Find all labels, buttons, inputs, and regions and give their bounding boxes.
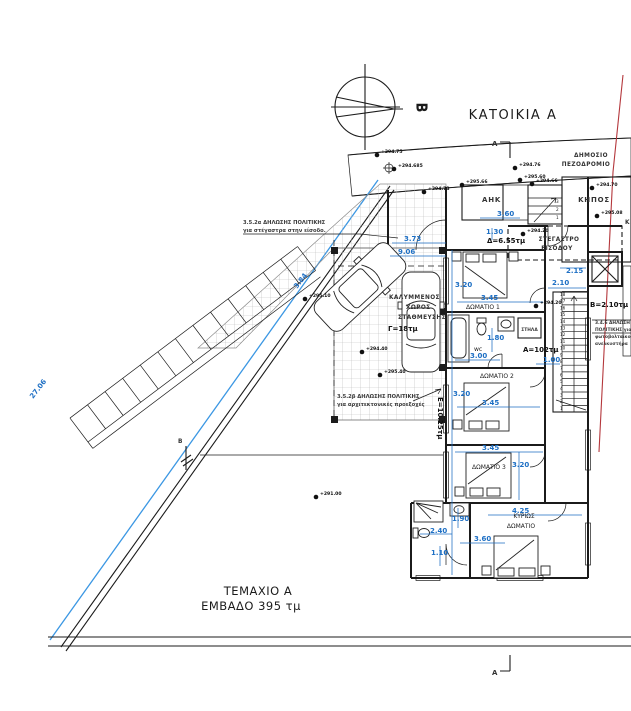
spot-elevation-dot	[521, 232, 526, 237]
stair-number: 3	[560, 393, 563, 398]
spot-elevation-label: +295.40	[384, 369, 406, 375]
dimension-label: 3.45	[481, 294, 498, 302]
dimension-label: 2.15	[566, 267, 583, 275]
elevator-shaft	[588, 252, 622, 286]
stair-number: 17	[560, 299, 566, 304]
entry-step-number: 1	[556, 215, 559, 220]
note-c-line2: ΠΟΛΙΤΙΚΗΣ για	[595, 327, 631, 333]
dimension-label: 3.20	[512, 461, 529, 469]
spot-elevation-dot	[303, 297, 308, 302]
stair-number: 5	[560, 379, 563, 384]
sidewalk-label-2: ΠΕΖΟΔΡΟΜΙΟ	[562, 162, 610, 168]
garden-label: ΚΗΠΟΣ	[578, 196, 610, 204]
stair-number: 18	[560, 292, 566, 297]
dimension-label: 1.10	[431, 549, 448, 557]
spot-elevation-label: +291.00	[320, 491, 342, 497]
plot-name: ΤΕΜΑΧΙΟ Α	[223, 584, 292, 598]
north-label: Β	[413, 103, 428, 113]
area-canopy: Δ=6.55τμ	[487, 237, 525, 245]
dimension-label: 3.60	[497, 210, 514, 218]
canopy-label-1: ΣΤΕΓΑΣΤΡΟ	[539, 237, 580, 243]
dimension-label: 1.90	[452, 515, 469, 523]
spot-elevation-dot	[530, 182, 535, 187]
spot-elevation-dot	[460, 183, 465, 188]
plot-area: ΕΜΒΑΔΟ 395 τμ	[201, 599, 301, 613]
spot-elevation-dot	[518, 178, 523, 183]
entry-step-number: 2	[556, 207, 559, 212]
spot-elevation-label: +294.66	[536, 178, 558, 184]
master-label-1: ΚΥΡΙΩΣ	[513, 513, 535, 520]
dimension-label: 27.06	[28, 378, 48, 400]
bedroom1-label: ΔΩΜΑΤΙΟ 1	[466, 304, 500, 311]
floor-plan-svg: 3.739.063.8427.063.601.302.152.103.203.4…	[0, 0, 631, 711]
note-a-line1: 3.5.2α ΔΗΛΩΣΗΣ ΠΟΛΙΤΙΚΗΣ	[243, 220, 326, 226]
spot-elevation-dot	[534, 304, 539, 309]
spot-elevation-label: +295.66	[466, 179, 488, 185]
dimension-label: 1.00	[543, 356, 560, 364]
spot-elevation-dot	[595, 214, 600, 219]
note-c-line3: φωτοβολταϊκού	[595, 333, 631, 340]
dimension-label: 3.20	[455, 281, 472, 289]
wc-label: wc	[474, 346, 482, 353]
spot-elevation-label: +294.76	[519, 162, 541, 168]
stair-number: 10	[560, 346, 566, 351]
note-c-line1: 3.4.6 ΔΗΛΩΣΗ	[595, 320, 630, 326]
car-vertical	[398, 272, 444, 372]
street-boundary	[48, 637, 631, 646]
dimension-label: 3.45	[482, 399, 499, 407]
entry-step-numbers: 321	[556, 199, 559, 220]
dimension-label: 2.40	[430, 527, 447, 535]
floor-plan-sheet: 3.739.063.8427.063.601.302.152.103.203.4…	[0, 0, 631, 711]
duct-label: ΣΤΗΛΑ	[521, 327, 538, 333]
bed-3	[455, 453, 511, 498]
north-compass: Β	[331, 64, 428, 150]
spot-elevation-dot	[590, 186, 595, 191]
spot-elevation-dot	[375, 153, 380, 158]
dimension-label: 3.60	[474, 535, 491, 543]
stair-number: 6	[560, 372, 563, 377]
stair-number: 12	[560, 332, 566, 337]
spot-elevation-label: +294.70	[596, 182, 618, 188]
bedroom2-label: ΔΩΜΑΤΙΟ 2	[480, 373, 514, 380]
spot-elevation-label: +294.75	[381, 149, 403, 155]
area-parking: Γ=18τμ	[388, 325, 418, 333]
spot-elevation-label: +294.73	[428, 186, 450, 192]
area-house: Α=102τμ	[523, 346, 559, 354]
dimension-label: 1.30	[486, 228, 503, 236]
note-b-line2: για αρχιτεκτονικές προεξοχές	[337, 401, 425, 408]
area-veranda: Ε=10.25τμ	[436, 397, 444, 439]
canopy-label-2: ΕΙΣΟΔΟΥ	[541, 246, 573, 252]
garden-label-partial: Κ	[625, 220, 630, 226]
note-b-line1: 3.5.2β ΔΗΛΩΣΗΣ ΠΟΛΙΤΙΚΗΣ	[337, 394, 420, 400]
spot-elevation-label: +294.40	[366, 346, 388, 352]
dimension-label: 9.06	[398, 248, 415, 256]
spot-elevation-dot	[513, 166, 518, 171]
stair-number: 15	[560, 312, 566, 317]
drawing-title: ΚΑΤΟΙΚΙΑ Α	[469, 108, 558, 123]
parking-label-1: ΚΑΛΥΜΜΕΝΟΣ	[389, 295, 440, 301]
dimension-label: 3.00	[470, 352, 487, 360]
section-a-top: A	[492, 140, 498, 148]
spot-elevation-dot	[392, 167, 397, 172]
stair-number: 7	[560, 366, 563, 371]
section-b-left: Β	[178, 439, 183, 445]
spot-elevation-label: +294.20	[540, 300, 562, 306]
stair-number: 9	[560, 352, 563, 357]
sidewalk-label-1: ΔΗΜΟΣΙΟ	[574, 153, 608, 159]
stair-number: 1	[560, 406, 563, 411]
dimension-label: 3.20	[453, 390, 470, 398]
note-c-line4: ανελκυστήρα	[595, 340, 628, 347]
spot-elevation-label: +295.08	[601, 210, 623, 216]
stair-number: 13	[560, 326, 566, 331]
master-bed	[482, 536, 550, 578]
stair-number: 11	[560, 339, 566, 344]
parking-label-3: ΣΤΑΘΜΕΥΣΗΣ	[398, 315, 446, 321]
dimension-label: 1.80	[487, 334, 504, 342]
parking-label-2: ΧΩΡΟΣ	[406, 305, 431, 311]
note-a-line2: για στέγαστρα στην είσοδο.	[243, 227, 326, 234]
spot-elevation-label: +294.685	[398, 163, 423, 169]
bed-1	[452, 252, 518, 298]
section-a-bottom: A	[492, 669, 498, 677]
stair-number: 14	[560, 319, 566, 324]
utility-box-label: ΑΗΚ	[482, 196, 501, 204]
spot-elevation-dot	[378, 373, 383, 378]
bedroom3-label: ΔΩΜΑΤΙΟ 3	[472, 464, 506, 471]
dimension-label: 3.45	[482, 444, 499, 452]
stair-number: 8	[560, 359, 563, 364]
dimension-label: 2.10	[552, 279, 569, 287]
dimension-label: 3.73	[404, 235, 421, 243]
stair-number: 4	[560, 386, 563, 391]
spot-elevation-label: +295.10	[309, 293, 331, 299]
area-balcony: Β=2.10τμ	[590, 301, 628, 309]
entry-step-number: 3	[556, 199, 559, 204]
master-label-2: ΔΩΜΑΤΙΟ	[507, 523, 535, 530]
stair-number: 16	[560, 305, 566, 310]
spot-elevation-label: +294.20	[527, 228, 549, 234]
spot-elevation-dot	[314, 495, 319, 500]
spot-elevation-dot	[360, 350, 365, 355]
stair-number: 2	[560, 399, 563, 404]
spot-elevation-dot	[422, 190, 427, 195]
